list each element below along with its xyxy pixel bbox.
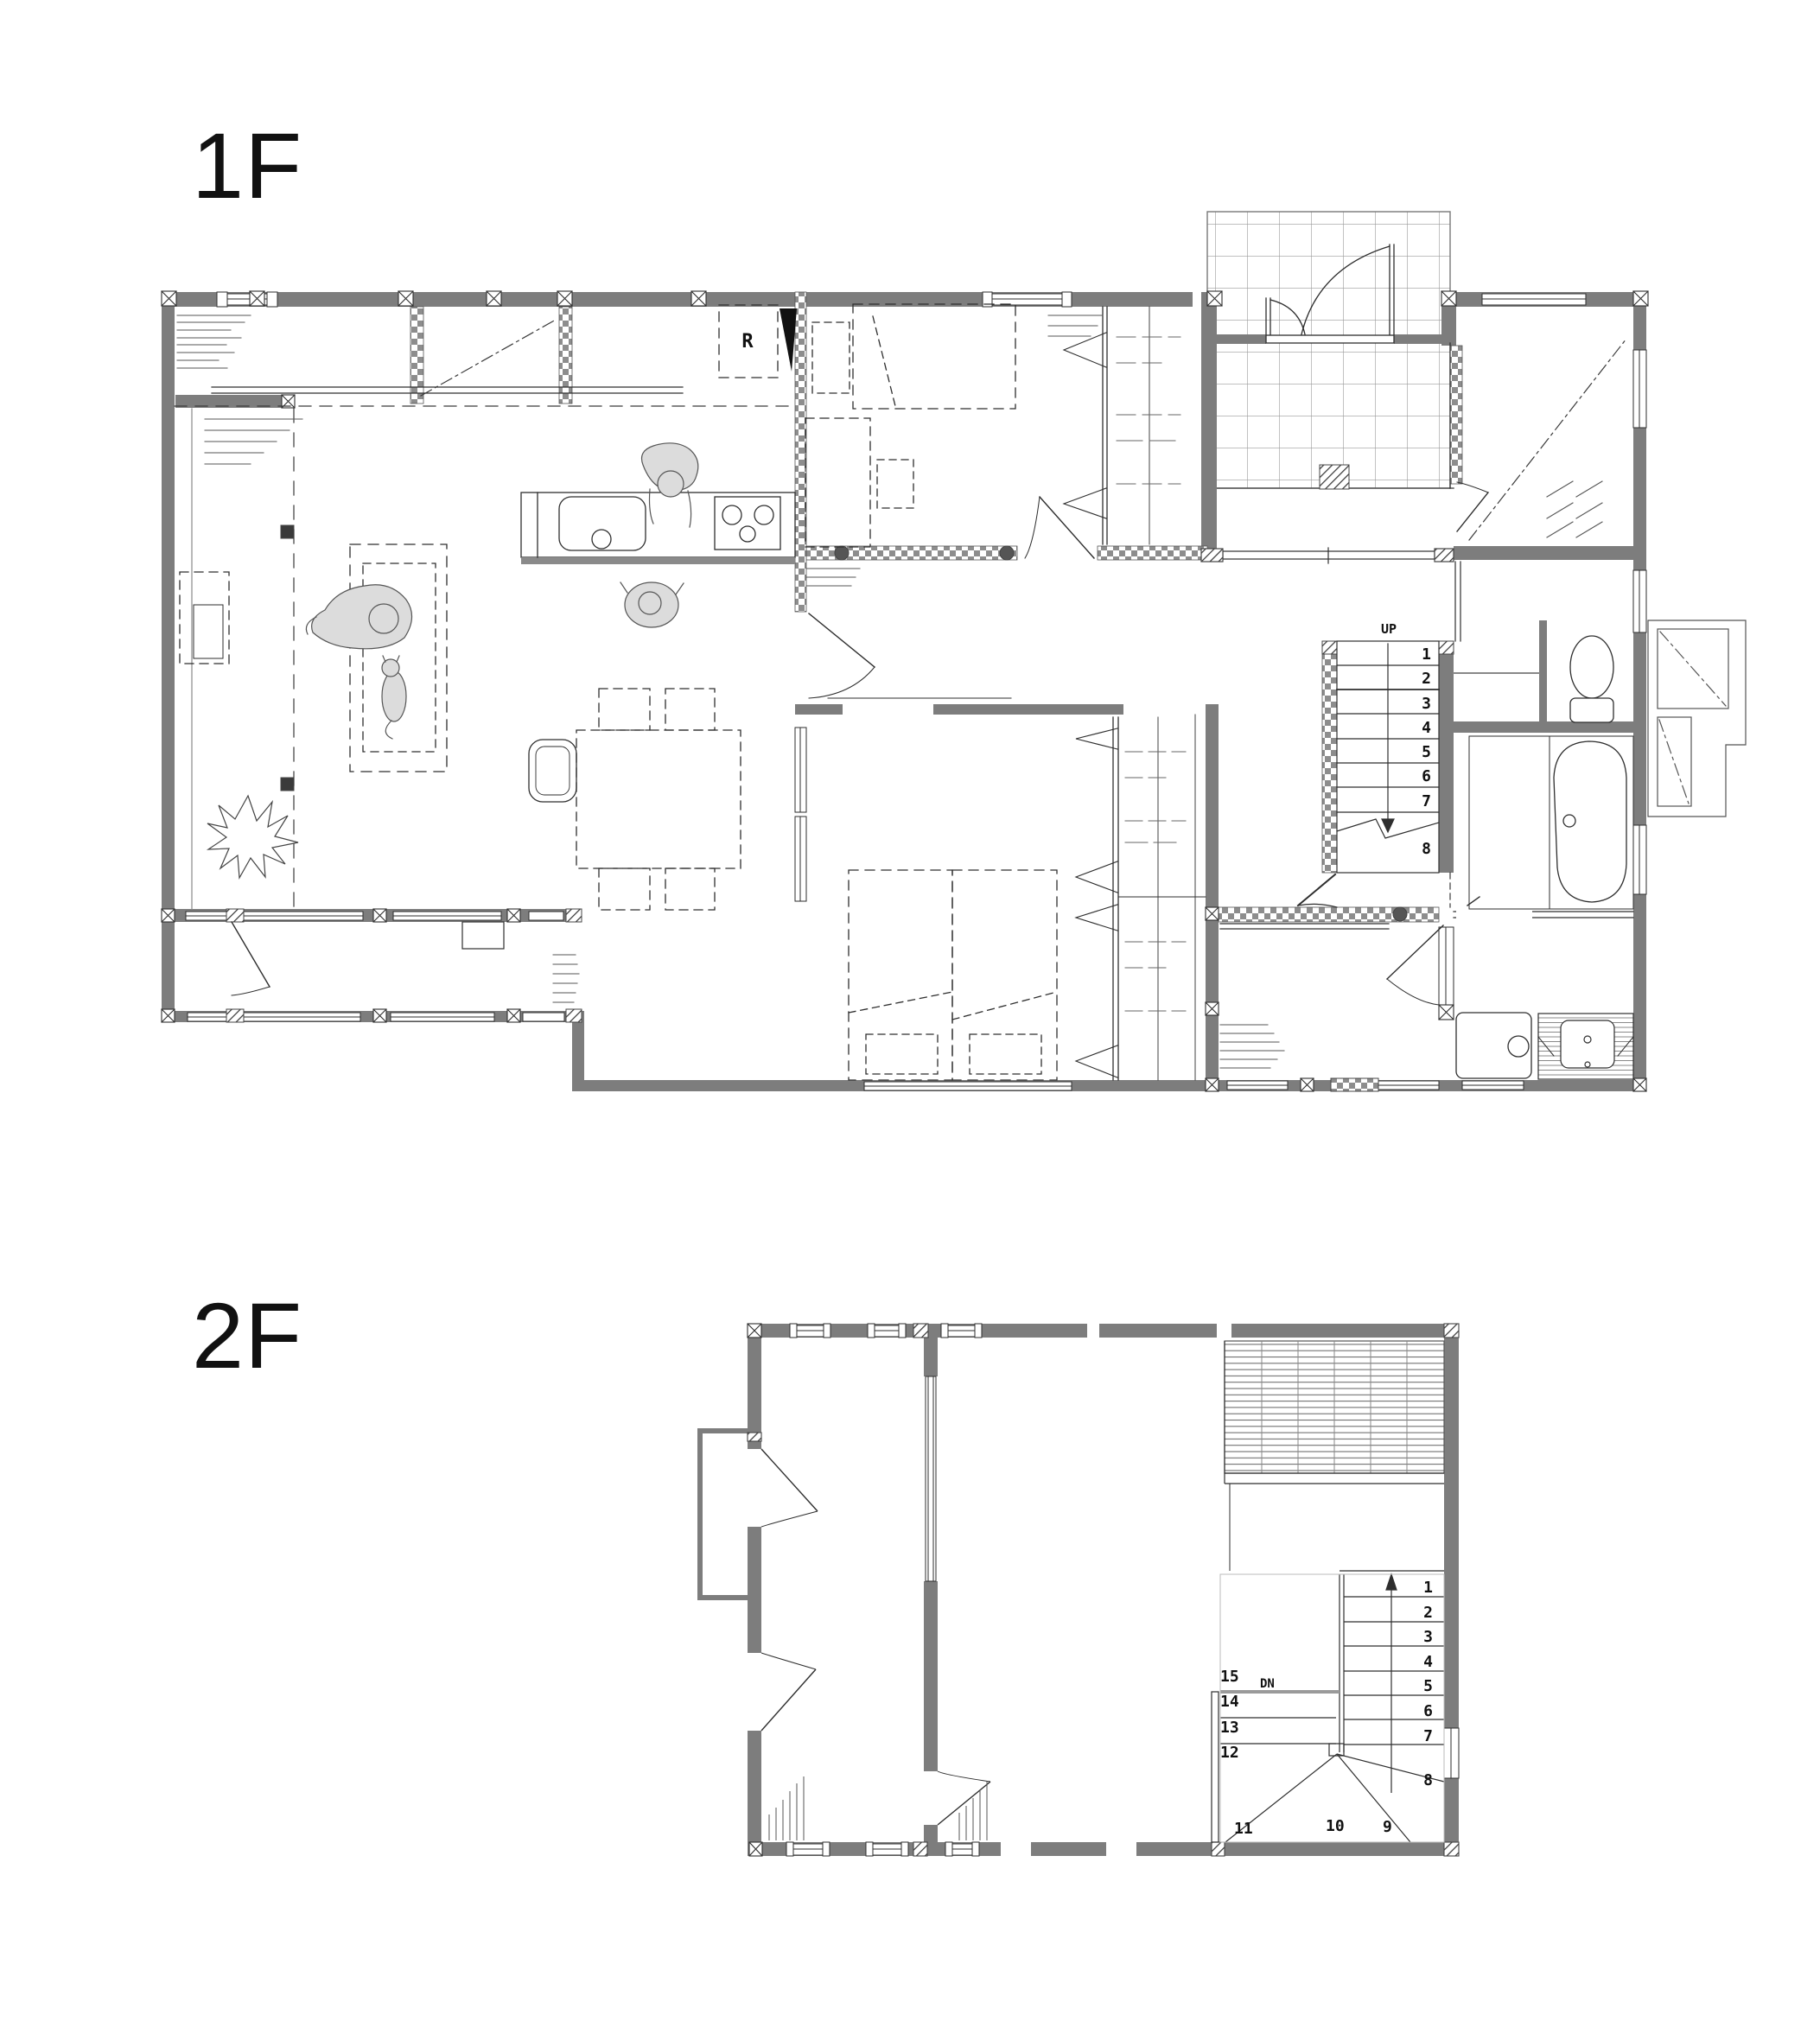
stairs-2f-step-10: 10 [1326, 1817, 1345, 1835]
stair-step-number: 7 [1422, 790, 1431, 814]
stair-step-number: 5 [1423, 1675, 1433, 1700]
stair-step-number: 1 [1422, 643, 1431, 667]
slatted-deck [1225, 1341, 1444, 1571]
stairs-down-label: DN [1260, 1677, 1275, 1691]
door-washroom [1387, 925, 1443, 1005]
stair-step-number: 5 [1422, 740, 1431, 765]
floor-1f-plan [162, 212, 1746, 1091]
stair-step-number: 2 [1422, 667, 1431, 691]
door-ldk-hall [809, 613, 875, 698]
person-standing-figure [620, 582, 684, 627]
stairs-2f-step-numbers-right: 1234567 [1383, 1576, 1433, 1749]
stairs-2f-step-9: 9 [1383, 1818, 1392, 1836]
vanity-sink [1538, 1014, 1633, 1079]
center-wall-window-2f [926, 1376, 936, 1581]
stair-step-number: 13 [1220, 1715, 1239, 1740]
door-2f-center [938, 1771, 990, 1825]
stairs-2f-step-numbers-left: 15141312 [1220, 1664, 1260, 1766]
toilet [1570, 636, 1613, 722]
floorplan-page: 1F 2F R UP DN 1234567 8 1234567 8 151413… [0, 0, 1820, 2021]
stair-step-number: 3 [1422, 692, 1431, 716]
kitchen-faucet [592, 530, 611, 549]
living-room-items [180, 544, 447, 772]
bathtub [1469, 736, 1633, 909]
door-2f-room-lower [761, 1653, 816, 1731]
door-entry-room [1457, 482, 1488, 531]
stair-step-number: 6 [1422, 765, 1431, 789]
plant-figure [207, 796, 298, 878]
tv-board [180, 572, 229, 664]
stair-step-number: 1 [1423, 1576, 1433, 1601]
stair-step-number: 2 [1423, 1601, 1433, 1626]
stair-step-number: 3 [1423, 1625, 1433, 1650]
stairs-up-label: UP [1357, 621, 1421, 637]
wall-wedge [780, 308, 797, 372]
door-2f-room-upper [761, 1449, 818, 1527]
entrance-tile-floor [1207, 212, 1454, 489]
genkan-sliding-door [1201, 548, 1454, 563]
floorplan-drawing [0, 0, 1820, 2021]
doors-1f [232, 482, 1488, 1005]
dining-table-set [529, 689, 741, 910]
hatch-fans-2f [769, 1776, 987, 1840]
stair-step-number: 12 [1220, 1740, 1239, 1765]
cat-figure [382, 656, 406, 739]
stair-step-number: 4 [1423, 1650, 1433, 1675]
floor2-label: 2F [192, 1289, 302, 1382]
bedroom2-items [849, 715, 1206, 1080]
stair-step-number: 15 [1220, 1664, 1239, 1689]
floor-2f-plan [697, 1324, 1459, 1856]
stairs-1f-step-numbers: 1234567 [1381, 643, 1431, 814]
stairs-2f-step-8: 8 [1383, 1771, 1433, 1789]
exterior-units [1648, 620, 1746, 817]
bedroom1-items [805, 304, 1180, 547]
stairs-2f-step-11: 11 [1234, 1820, 1253, 1838]
doors-2f [761, 1449, 990, 1825]
door-engawa [232, 922, 270, 995]
stairs-1f-step-8: 8 [1381, 840, 1431, 858]
stair-step-number: 4 [1422, 716, 1431, 740]
refrigerator-label: R [730, 331, 765, 353]
stair-step-number: 6 [1423, 1700, 1433, 1725]
washing-machine [1456, 1013, 1531, 1078]
stair-step-number: 7 [1423, 1725, 1433, 1750]
floor1-label: 1F [192, 119, 302, 213]
kitchen-counter [521, 493, 795, 564]
stair-step-number: 14 [1220, 1689, 1239, 1714]
engawa-items [462, 922, 579, 1002]
door-bedroom1 [1025, 497, 1094, 558]
person-sitting-figure [306, 585, 411, 649]
